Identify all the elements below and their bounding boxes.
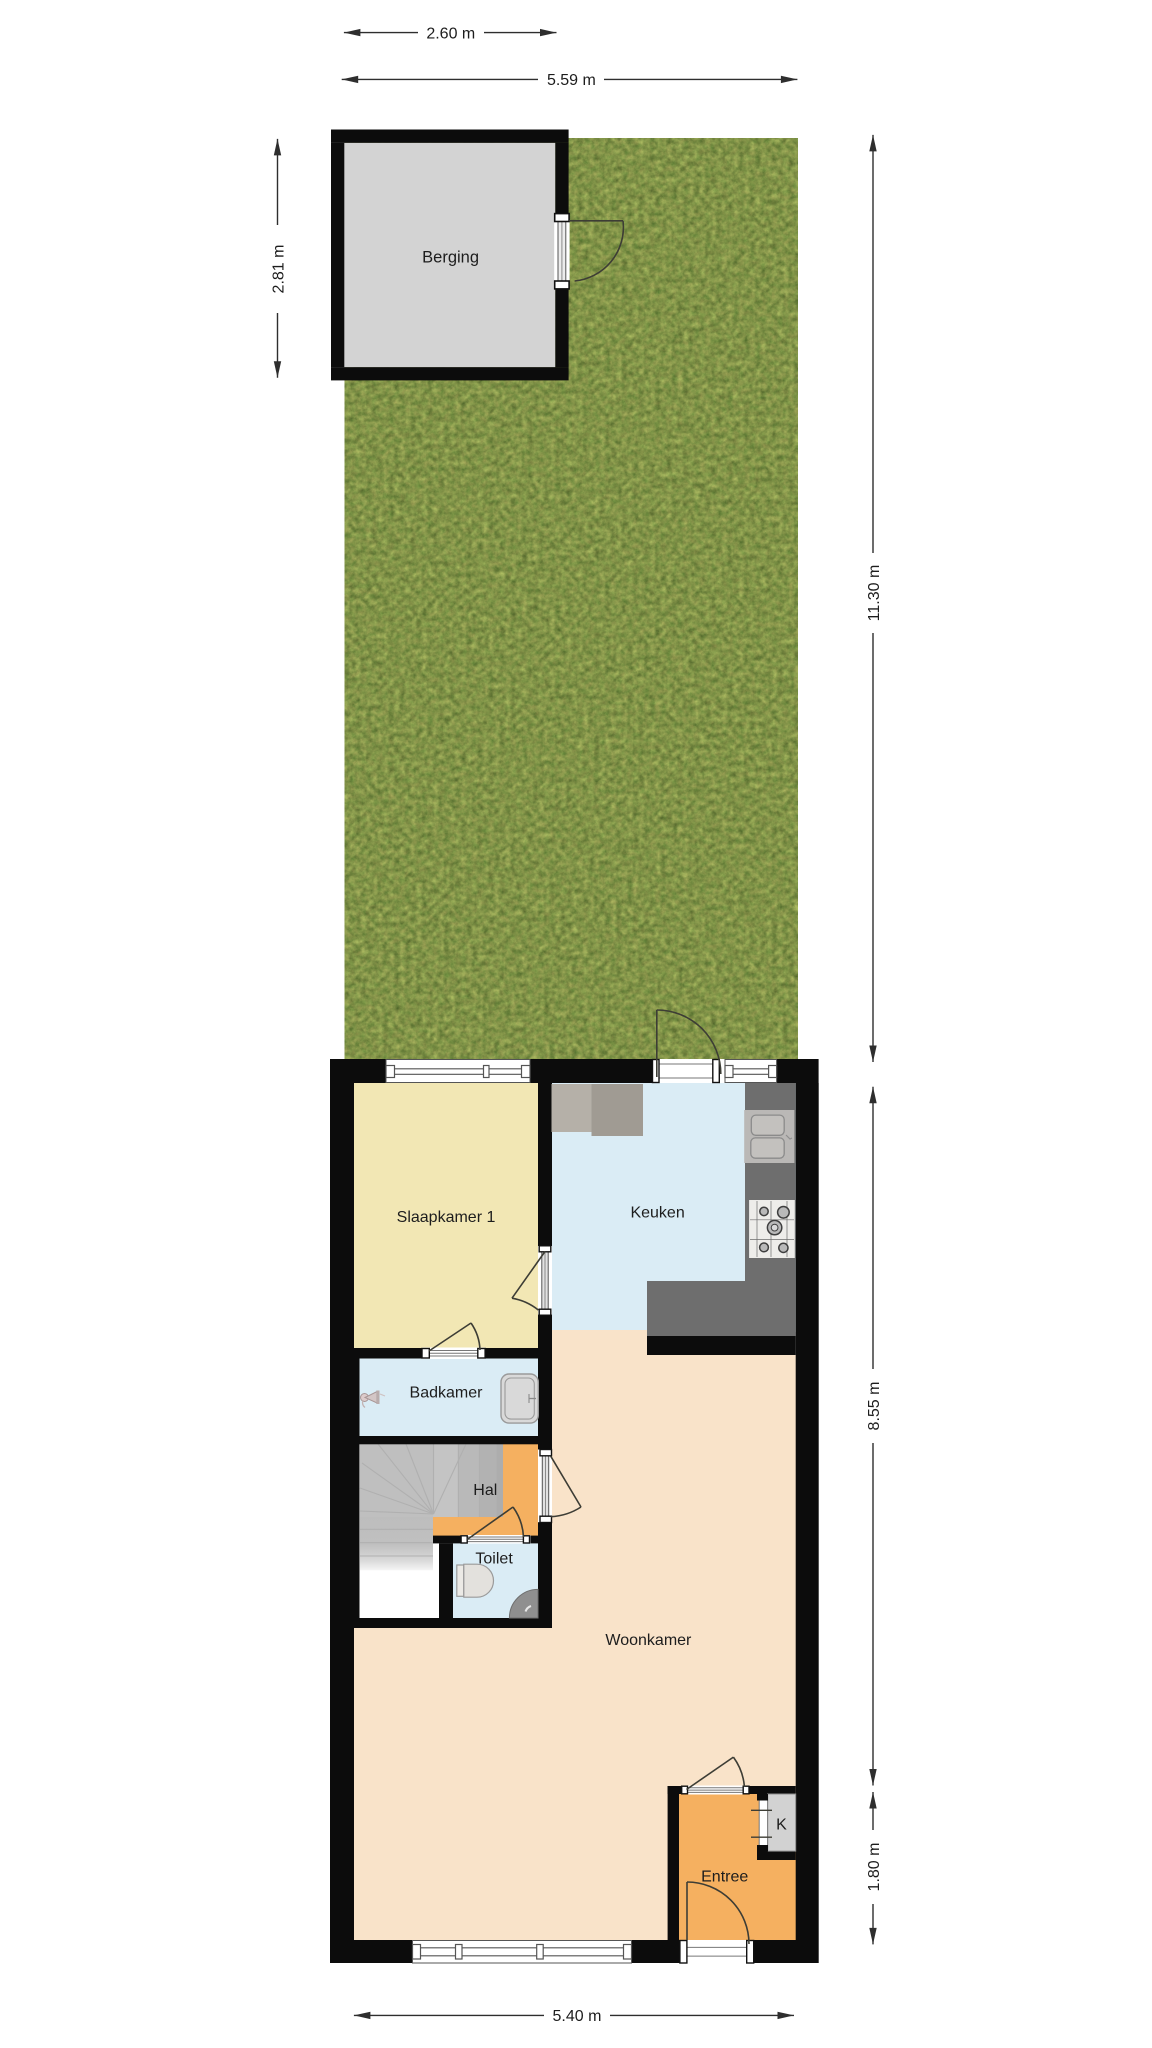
svg-text:Toilet: Toilet <box>475 1551 513 1568</box>
svg-text:Entree: Entree <box>701 1869 748 1886</box>
svg-text:Berging: Berging <box>422 249 479 267</box>
svg-text:11.30 m: 11.30 m <box>866 565 883 622</box>
svg-text:Woonkamer: Woonkamer <box>605 1632 692 1649</box>
svg-text:8.55 m: 8.55 m <box>866 1382 883 1431</box>
svg-text:2.81 m: 2.81 m <box>271 245 288 294</box>
svg-text:K: K <box>776 1816 787 1833</box>
svg-text:Keuken: Keuken <box>630 1205 684 1222</box>
svg-text:Badkamer: Badkamer <box>410 1384 484 1401</box>
svg-text:Hal: Hal <box>473 1482 497 1499</box>
svg-text:5.59 m: 5.59 m <box>547 72 596 89</box>
svg-text:Slaapkamer 1: Slaapkamer 1 <box>397 1209 496 1226</box>
svg-text:2.60 m: 2.60 m <box>426 25 475 42</box>
svg-text:5.40 m: 5.40 m <box>553 2008 602 2025</box>
svg-text:1.80 m: 1.80 m <box>866 1843 883 1892</box>
